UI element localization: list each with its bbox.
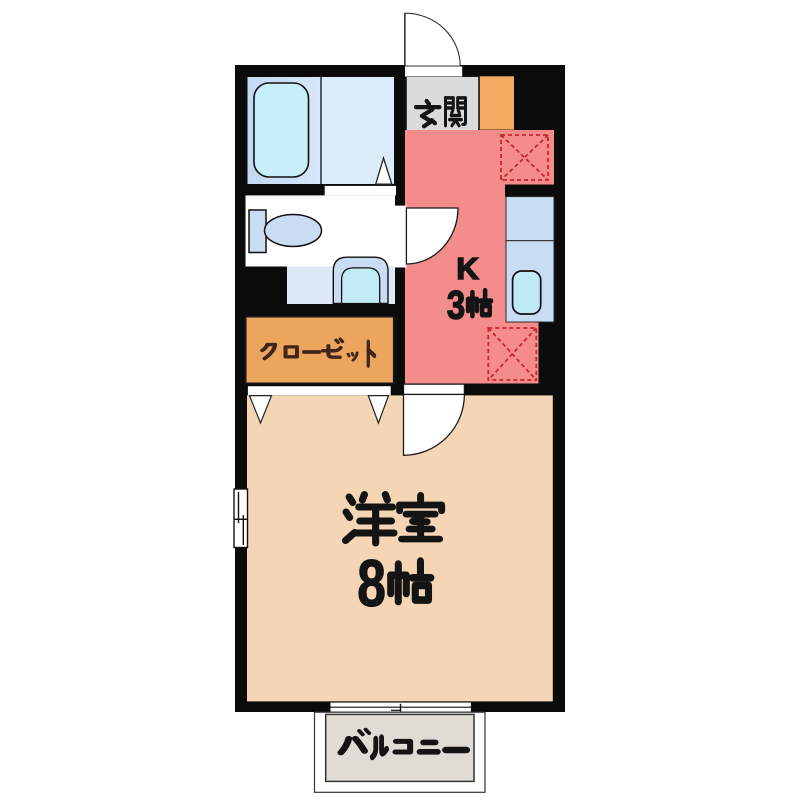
svg-text:3: 3 [447,282,465,327]
svg-text:8: 8 [357,546,386,621]
svg-text:K: K [456,251,479,286]
